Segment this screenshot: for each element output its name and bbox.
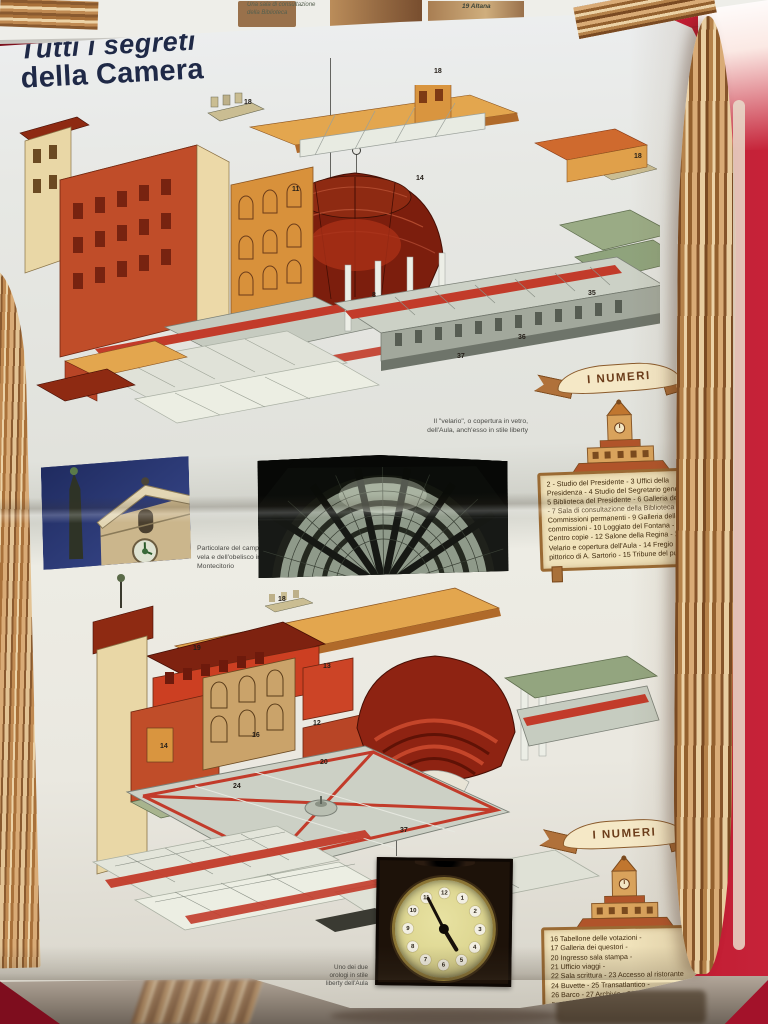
callout-number: 12 bbox=[313, 720, 321, 727]
clock-number: 9 bbox=[402, 923, 413, 934]
callout-number: 16 bbox=[252, 732, 260, 739]
illustration-reflection bbox=[330, 1008, 560, 1024]
photo-scene: Una sala di consultazione della Bibliote… bbox=[0, 0, 768, 1024]
callout-number: 14 bbox=[416, 175, 424, 182]
callout-number: 18 bbox=[434, 68, 442, 75]
velario-caption: Il "velario", o copertura in vetro, dell… bbox=[390, 418, 528, 436]
callout-number: 36 bbox=[518, 334, 526, 341]
callout-number: 24 bbox=[233, 783, 241, 790]
clock-number: 12 bbox=[439, 887, 450, 898]
callout-number: 11 bbox=[292, 186, 299, 193]
callout-number: 37 bbox=[400, 827, 408, 834]
border-stripes-fragment bbox=[0, 0, 98, 30]
callout-number: 37 bbox=[457, 353, 465, 360]
callout-number: 19 bbox=[193, 645, 201, 652]
clock-number: 2 bbox=[470, 906, 481, 917]
magazine-spread: Tutti i segreti della Camera bbox=[0, 0, 768, 1024]
clock-number: 10 bbox=[408, 905, 419, 916]
callout-number: 35 bbox=[588, 290, 596, 297]
clock-number: 3 bbox=[474, 924, 485, 935]
callout-number: 8 bbox=[372, 292, 376, 299]
page-curl-stripes-right bbox=[673, 16, 738, 974]
clock-frame-ornament bbox=[415, 859, 475, 868]
callout-number: 14 bbox=[160, 743, 168, 750]
page-edge-highlight bbox=[733, 100, 745, 950]
previous-page-label: 19 Altana bbox=[462, 3, 491, 10]
clock-number: 1 bbox=[457, 893, 468, 904]
previous-page-caption: Una sala di consultazione della Bibliote… bbox=[247, 2, 325, 17]
stripes-reflection bbox=[131, 980, 263, 1024]
callout-number: 18 bbox=[278, 596, 286, 603]
callout-number: 13 bbox=[323, 663, 331, 670]
callout-number: 18 bbox=[244, 99, 252, 106]
callout-number: 20 bbox=[320, 759, 328, 766]
clock-center-cap bbox=[439, 924, 449, 934]
